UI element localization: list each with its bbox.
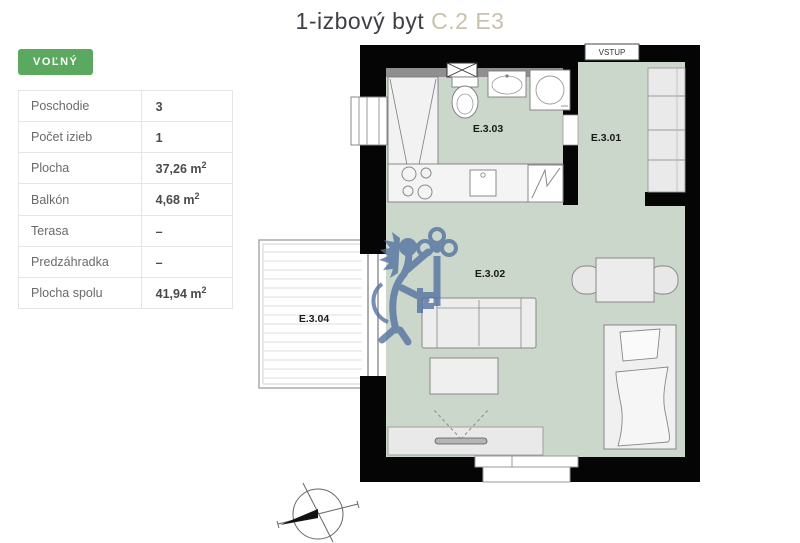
table-row: Plocha spolu 41,94 m2	[19, 277, 233, 308]
details-table: Poschodie 3 Počet izieb 1 Plocha 37,26 m…	[18, 90, 233, 309]
balcony-door	[360, 228, 386, 402]
window-bottom	[475, 456, 578, 482]
table-row: Plocha 37,26 m2	[19, 153, 233, 184]
room-label-e304: E.3.04	[299, 313, 330, 325]
row-value: –	[141, 215, 232, 246]
floor-plan: VSTUP E.3.01 E.3.02 E.3.03 E.3.04	[250, 40, 710, 543]
wardrobe	[648, 68, 685, 192]
row-value: –	[141, 246, 232, 277]
room-label-e302: E.3.02	[475, 268, 506, 280]
page-title: 1-izbový byt C.2 E3	[0, 8, 800, 35]
washbasin	[488, 71, 526, 97]
page-title-unit: C.2 E3	[431, 8, 504, 34]
apartment-detail-page: 1-izbový byt C.2 E3 VOĽNÝ Poschodie 3 Po…	[0, 0, 800, 543]
row-label: Počet izieb	[19, 122, 142, 153]
status-badge: VOĽNÝ	[18, 49, 93, 75]
vent-shaft	[447, 63, 477, 77]
table-row: Predzáhradka –	[19, 246, 233, 277]
pillow	[620, 329, 660, 361]
kitchen-counter	[388, 164, 563, 202]
table-row: Poschodie 3	[19, 91, 233, 122]
entry-label: VSTUP	[585, 44, 639, 60]
row-label: Predzáhradka	[19, 246, 142, 277]
toilet	[452, 77, 478, 118]
coffee-table	[430, 358, 498, 394]
svg-text:VSTUP: VSTUP	[599, 48, 626, 57]
row-label: Plocha spolu	[19, 277, 142, 308]
fridge-icon	[528, 165, 563, 202]
sink-icon	[470, 170, 496, 196]
row-label: Terasa	[19, 215, 142, 246]
page-title-main: 1-izbový byt	[296, 8, 425, 34]
table-row: Terasa –	[19, 215, 233, 246]
row-value: 1	[141, 122, 232, 153]
table-row: Balkón 4,68 m2	[19, 184, 233, 215]
row-value: 37,26 m2	[141, 153, 232, 184]
duvet	[616, 367, 669, 446]
row-label: Balkón	[19, 184, 142, 215]
room-label-e301: E.3.01	[591, 132, 622, 144]
row-value: 4,68 m2	[141, 184, 232, 215]
row-value: 41,94 m2	[141, 277, 232, 308]
row-label: Poschodie	[19, 91, 142, 122]
compass-icon	[277, 483, 359, 542]
table-row: Počet izieb 1	[19, 122, 233, 153]
washing-machine	[530, 70, 570, 110]
room-label-e303: E.3.03	[473, 123, 504, 135]
bed	[604, 325, 676, 449]
row-value: 3	[141, 91, 232, 122]
row-label: Plocha	[19, 153, 142, 184]
window-left	[351, 97, 387, 145]
